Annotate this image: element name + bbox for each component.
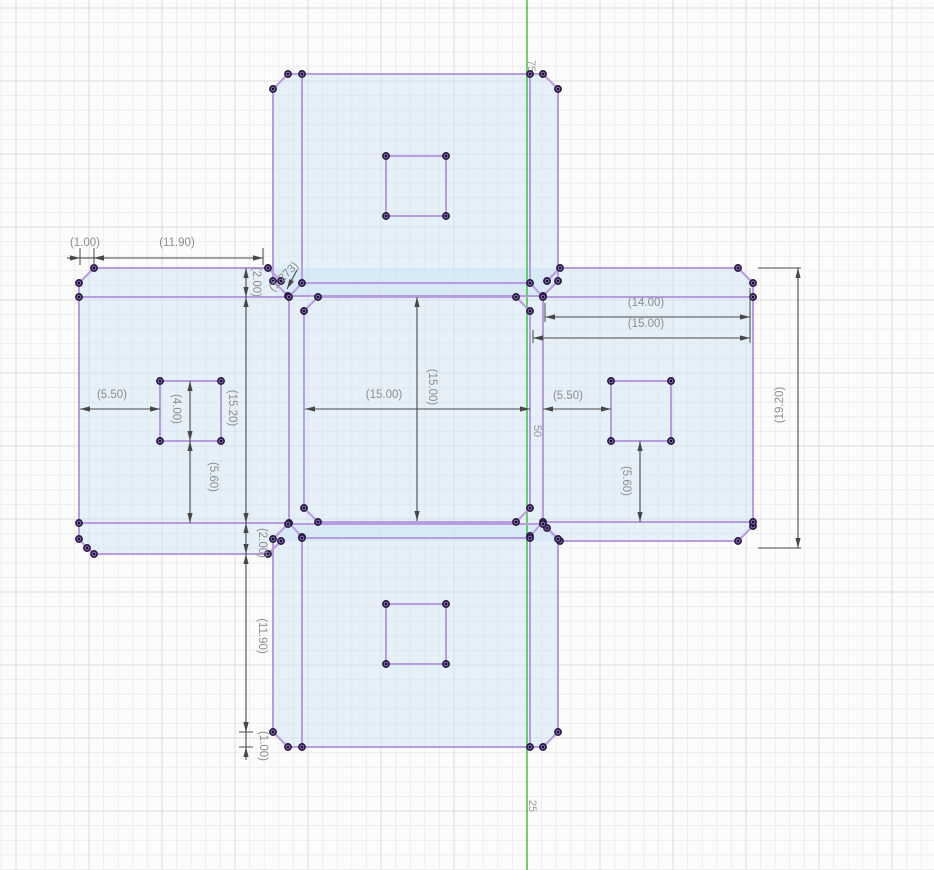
sketch-vertex-core: [445, 215, 448, 218]
sketch-vertex-core: [301, 537, 304, 540]
sketch-vertex-core: [610, 380, 613, 383]
sketch-vertex-core: [280, 540, 283, 543]
sketch-vertex-core: [557, 88, 560, 91]
sketch-vertex-core: [529, 282, 532, 285]
sketch-vertex-core: [220, 440, 223, 443]
sketch-vertex-core: [610, 440, 613, 443]
sketch-vertex-core: [78, 282, 81, 285]
sketch-vertex-core: [515, 521, 518, 524]
sketch-vertex-core: [752, 282, 755, 285]
dimension-label[interactable]: (5.60): [207, 462, 219, 492]
dimension-label[interactable]: (1.00): [257, 731, 269, 761]
sketch-vertex-core: [529, 537, 532, 540]
dimension-label[interactable]: (4.00): [170, 394, 182, 424]
sketch-vertex-core: [301, 746, 304, 749]
dimension-label[interactable]: (5.60): [620, 466, 632, 496]
dimension-label[interactable]: (15.00): [366, 389, 403, 401]
sketch-vertex-core: [737, 267, 740, 270]
sketch-vertex-core: [557, 538, 560, 541]
sketch-vertex-core: [542, 296, 545, 299]
sketch-vertex-core: [93, 267, 96, 270]
sketch-canvas[interactable]: 755025(1.00)(11.90)(2.00)(14.00)(15.00)(…: [0, 0, 934, 870]
sketch-vertex-core: [546, 280, 549, 283]
dimension-label[interactable]: (2.00): [250, 267, 262, 297]
sketch-face[interactable]: [273, 74, 558, 296]
sketch-vertex-core: [670, 380, 673, 383]
dimension-label[interactable]: (11.90): [159, 237, 195, 249]
dimension-label[interactable]: (11.90): [256, 618, 268, 654]
sketch-vertex-core: [542, 746, 545, 749]
sketch-vertex-core: [670, 440, 673, 443]
sketch-vertex-core: [546, 527, 549, 530]
sketch-vertex-core: [542, 73, 545, 76]
dimension-label[interactable]: (15.00): [628, 318, 665, 330]
sketch-vertex-core: [272, 731, 275, 734]
sketch-vertex-core: [301, 73, 304, 76]
sketch-vertex-core: [385, 155, 388, 158]
sketch-vertex-core: [78, 538, 81, 541]
sketch-vertex-core: [288, 296, 291, 299]
dimension-label[interactable]: (5.50): [553, 390, 583, 402]
dimension-label[interactable]: (14.00): [628, 297, 665, 309]
sketch-vertex-core: [220, 380, 223, 383]
sketch-vertex-core: [159, 380, 162, 383]
sketch-vertex-core: [385, 215, 388, 218]
sketch-vertex-core: [529, 507, 532, 510]
sketch-vertex-core: [301, 282, 304, 285]
sketch-vertex-core: [78, 296, 81, 299]
sketch-vertex-core: [542, 523, 545, 526]
sketch-vertex-core: [317, 521, 320, 524]
dimension-label[interactable]: (15.20): [226, 390, 238, 427]
sketch-vertex-core: [752, 521, 755, 524]
sketch-vertex-core: [445, 663, 448, 666]
sketch-vertex-core: [559, 267, 562, 270]
sketch-vertex-core: [445, 603, 448, 606]
sketch-vertex-core: [303, 310, 306, 313]
sketch-vertex-core: [515, 296, 518, 299]
sketch-vertex-core: [272, 88, 275, 91]
sketch-vertex-core: [529, 73, 532, 76]
sketch-vertex-core: [303, 507, 306, 510]
sketch-vertex-core: [385, 603, 388, 606]
sketch-vertex-core: [93, 553, 96, 556]
dimension-label[interactable]: (1.00): [70, 237, 100, 249]
dimension-label[interactable]: (15.00): [426, 369, 438, 406]
sketch-vertex-core: [529, 746, 532, 749]
dimension-label[interactable]: (19.20): [774, 387, 786, 424]
cad-sketch-viewport: 755025(1.00)(11.90)(2.00)(14.00)(15.00)(…: [0, 0, 934, 870]
sketch-vertex-core: [159, 440, 162, 443]
sketch-vertex-core: [287, 746, 290, 749]
sketch-vertex-core: [557, 731, 560, 734]
sketch-vertex-core: [267, 267, 270, 270]
sketch-vertex-core: [737, 540, 740, 543]
sketch-vertex-core: [78, 522, 81, 525]
sketch-vertex-core: [287, 73, 290, 76]
dimension-label[interactable]: (5.50): [97, 389, 127, 401]
sketch-vertex-core: [445, 155, 448, 158]
sketch-vertex-core: [529, 310, 532, 313]
dimension-label[interactable]: (2.00): [256, 528, 268, 558]
sketch-vertex-core: [272, 538, 275, 541]
sketch-vertex-core: [557, 280, 560, 283]
axis-coordinate-label: 25: [526, 800, 538, 812]
sketch-face[interactable]: [273, 524, 558, 747]
sketch-vertex-core: [385, 663, 388, 666]
axis-coordinate-label: 50: [531, 425, 543, 437]
sketch-vertex-core: [287, 523, 290, 526]
sketch-vertex-core: [317, 296, 320, 299]
sketch-vertex-core: [86, 547, 89, 550]
sketch-vertex-core: [752, 296, 755, 299]
